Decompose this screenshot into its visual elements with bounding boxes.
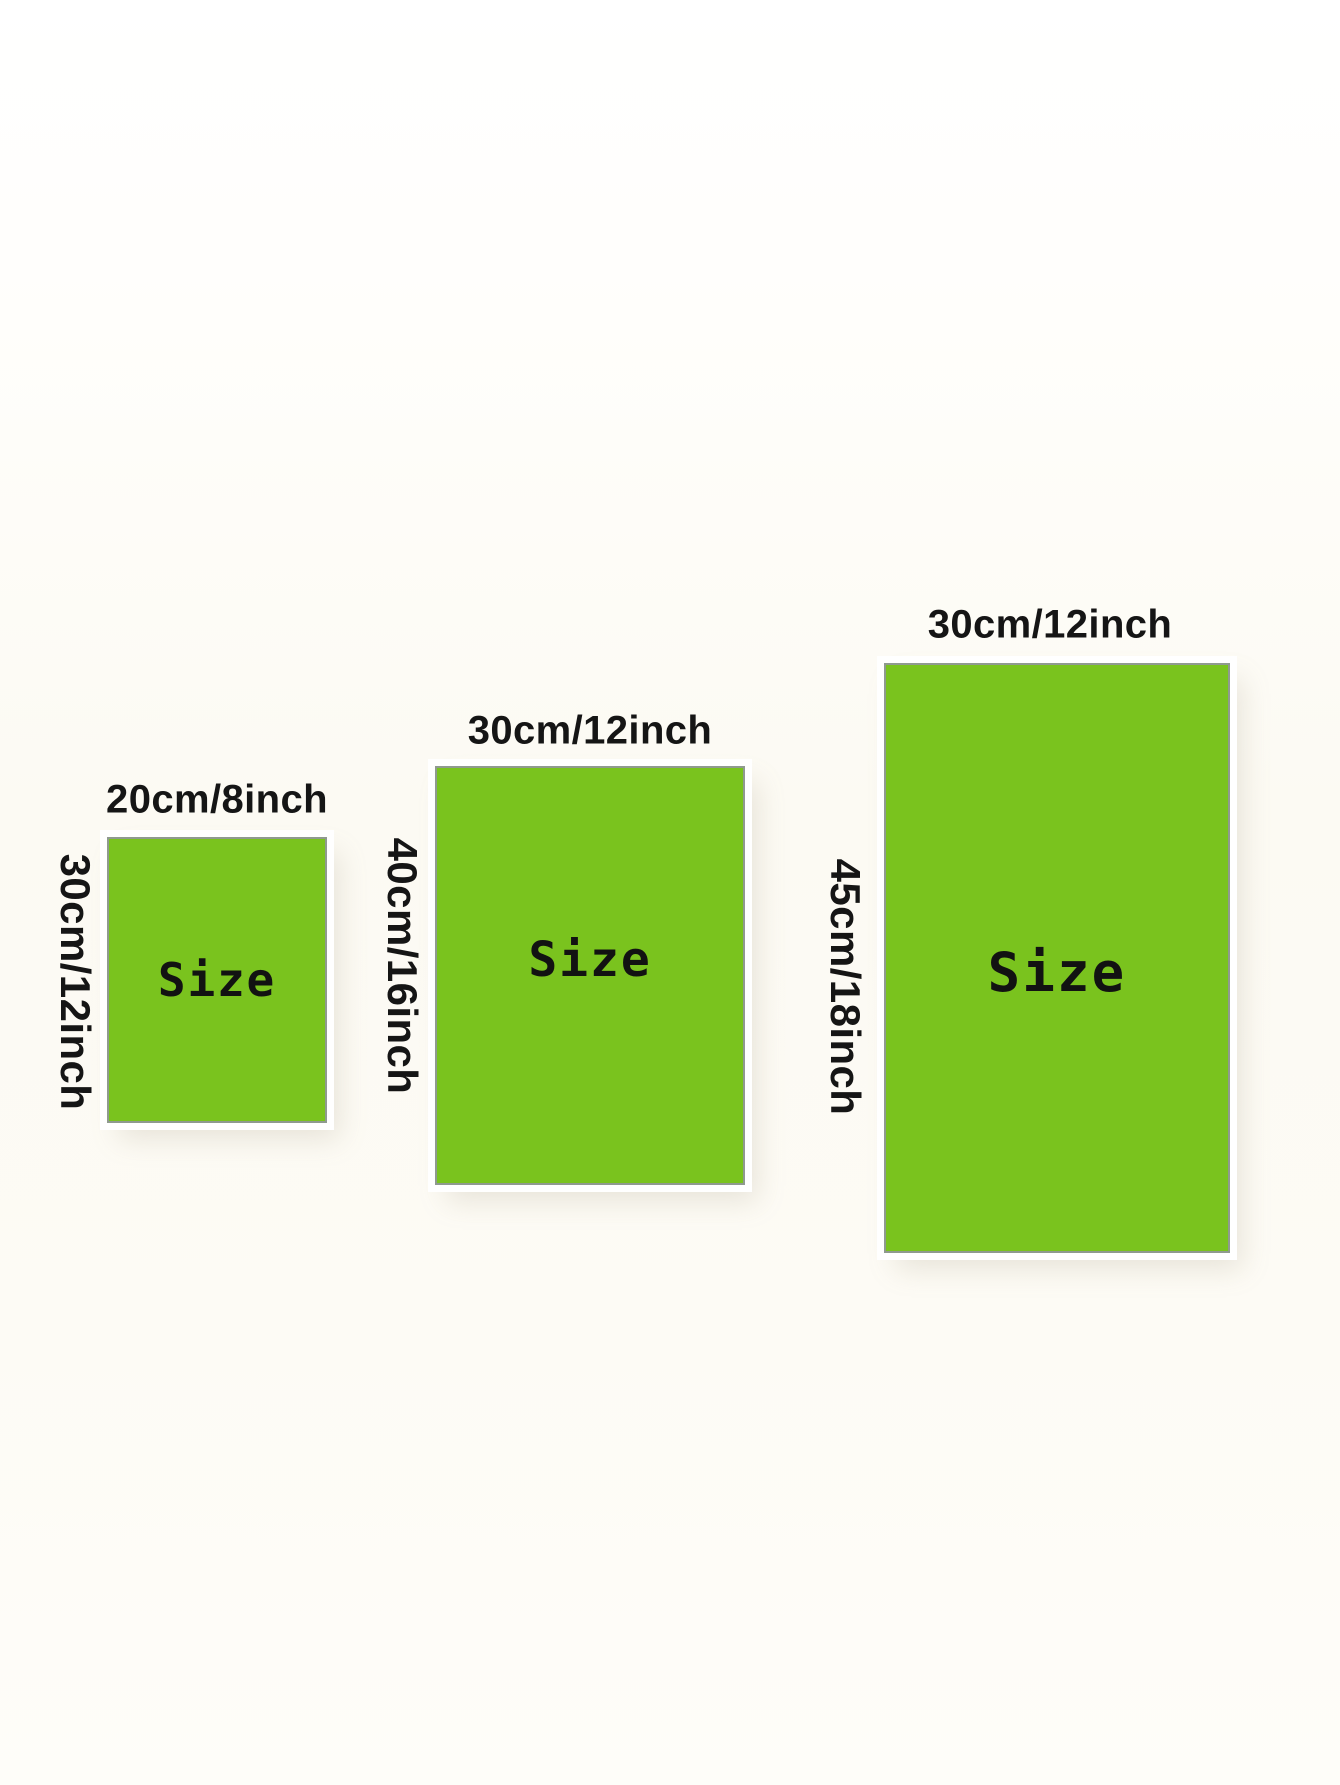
green-rectangle-small: Size — [107, 837, 327, 1123]
height-label-medium: 40cm/16inch — [378, 838, 426, 1095]
green-rectangle-large: Size — [884, 663, 1230, 1253]
size-label-small: Size — [158, 953, 276, 1007]
size-label-medium: Size — [528, 932, 651, 988]
width-label-large: 30cm/12inch — [928, 603, 1173, 648]
size-label-large: Size — [988, 941, 1127, 1004]
height-label-large: 45cm/18inch — [821, 859, 869, 1116]
width-label-medium: 30cm/12inch — [468, 709, 713, 754]
height-label-small: 30cm/12inch — [51, 854, 99, 1111]
width-label-small: 20cm/8inch — [106, 778, 328, 823]
green-rectangle-medium: Size — [435, 766, 745, 1185]
size-chart-image: 20cm/8inch 30cm/12inch Size 30cm/12inch … — [0, 0, 1340, 1785]
